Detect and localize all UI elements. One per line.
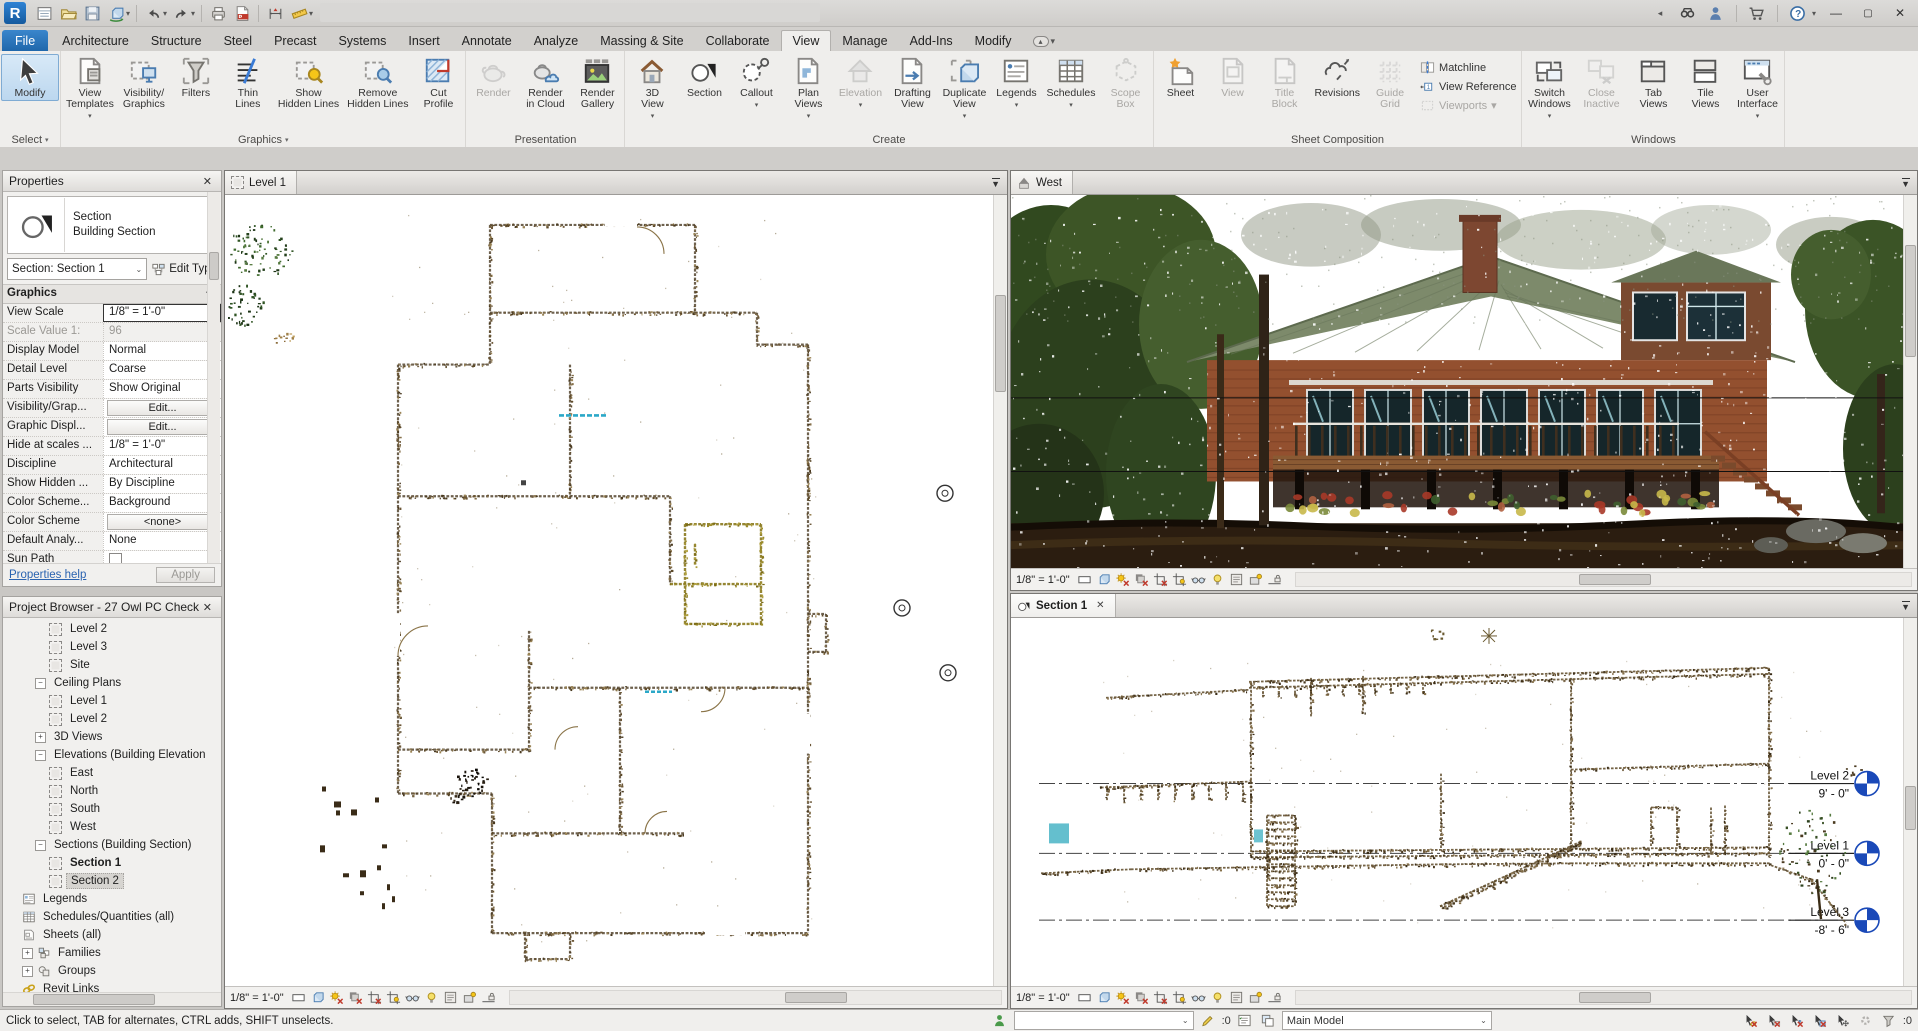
section1-view-tab[interactable]: Section 1 ✕ — [1011, 594, 1116, 617]
thin-lines-icon — [233, 56, 263, 86]
browser-item-east[interactable]: East — [3, 764, 221, 782]
browser-item-ceiling-plans[interactable]: −Ceiling Plans — [3, 674, 221, 692]
help-dropdown-icon[interactable]: ▾ — [1812, 9, 1816, 18]
vis-graphics-icon — [129, 56, 159, 86]
save-icon[interactable] — [80, 2, 104, 24]
section1-vertical-scrollbar[interactable] — [1903, 618, 1917, 986]
panel-graphics: ViewTemplates▾Visibility/GraphicsFilters… — [61, 51, 466, 147]
browser-item-section-2[interactable]: Section 2 — [3, 872, 221, 890]
redo-dropdown-icon[interactable]: ▾ — [191, 9, 195, 18]
expand-icon[interactable]: + — [22, 966, 33, 977]
view-icon — [49, 803, 62, 816]
revisions-icon — [1322, 56, 1352, 86]
project-browser: Project Browser - 27 Owl PC Check ✕ Leve… — [2, 596, 222, 1007]
property-row: DisciplineArchitectural — [3, 456, 221, 475]
temporary-hide-isolate-icon[interactable] — [404, 989, 422, 1006]
property-row: Hide at scales ...1/8" = 1'-0" — [3, 437, 221, 456]
switch-windows-button[interactable]: SwitchWindows▾ — [1523, 54, 1575, 124]
reveal-constraints-icon[interactable] — [480, 989, 498, 1006]
browser-item-3d-views[interactable]: +3D Views — [3, 728, 221, 746]
svg-text:0' - 0": 0' - 0" — [1818, 856, 1849, 870]
property-value[interactable]: Background — [103, 494, 221, 512]
view-icon — [49, 641, 62, 654]
temporary-view-properties-icon[interactable] — [1228, 989, 1246, 1006]
tab-steel[interactable]: Steel — [213, 30, 264, 51]
property-row: Graphic Displ...Edit... — [3, 418, 221, 437]
close-inactive-button: CloseInactive — [1575, 54, 1627, 112]
detail-level-icon[interactable] — [1076, 989, 1094, 1006]
view-icon — [49, 695, 62, 708]
visual-style-icon[interactable] — [1095, 989, 1113, 1006]
property-row: View Scale1/8" = 1'-0" — [3, 304, 221, 323]
section-button[interactable]: Section — [678, 54, 730, 101]
property-label: Scale Value 1: — [3, 323, 103, 341]
title-bar: R ▾▾▾▾1A▾▾▾ ◂ ? ▾ — ▢ ✕ — [0, 0, 1918, 27]
property-value-input[interactable]: 1/8" = 1'-0" — [103, 304, 221, 322]
property-label: Sun Path — [3, 551, 103, 563]
expand-icon[interactable]: + — [35, 732, 46, 743]
west-window-menu-icon[interactable]: ▼ — [1901, 178, 1917, 188]
panel-select: ModifySelect▾ — [0, 51, 61, 147]
ribbon-tab-row: FileArchitectureStructureSteelPrecastSys… — [0, 27, 1918, 51]
render-in-cloud-button[interactable]: Renderin Cloud — [519, 54, 571, 112]
shadows-icon[interactable] — [1133, 571, 1151, 588]
reveal-hidden-elements-icon[interactable] — [1209, 571, 1227, 588]
properties-help-link[interactable]: Properties help — [9, 569, 86, 581]
property-label: Color Scheme... — [3, 494, 103, 512]
render-button: Render — [467, 54, 519, 101]
user-interface-button[interactable]: UserInterface▾ — [1731, 54, 1783, 124]
title-area — [320, 3, 820, 22]
browser-item-groups[interactable]: +Groups — [3, 962, 221, 980]
view-reference-button[interactable]: 1View Reference — [1416, 77, 1520, 96]
property-value[interactable]: 1/8" = 1'-0" — [103, 437, 221, 455]
render-gallery-button[interactable]: RenderGallery — [571, 54, 623, 112]
property-row: Color Scheme<none> — [3, 513, 221, 532]
undo-icon[interactable] — [141, 2, 165, 24]
sun-path-icon[interactable] — [1114, 989, 1132, 1006]
drafting-view-icon — [897, 56, 927, 86]
open-icon[interactable] — [56, 2, 80, 24]
tab-systems[interactable]: Systems — [327, 30, 397, 51]
export-pdf-icon[interactable] — [230, 2, 254, 24]
show-crop-region-icon[interactable] — [1171, 571, 1189, 588]
property-value[interactable]: Architectural — [103, 456, 221, 474]
sync-icon[interactable] — [104, 2, 128, 24]
viewports-button: Viewports▾ — [1416, 96, 1520, 115]
project-browser-hscrollbar[interactable] — [3, 992, 221, 1006]
level1-horizontal-scrollbar[interactable] — [509, 990, 1002, 1005]
view-button: View — [1207, 54, 1259, 101]
select-by-face-icon[interactable] — [1811, 1012, 1829, 1029]
west-horizontal-scrollbar[interactable] — [1295, 572, 1912, 587]
drafting-view-button[interactable]: DraftingView — [886, 54, 938, 112]
duplicate-view-button[interactable]: DuplicateView▾ — [938, 54, 990, 124]
legend-icon — [22, 892, 36, 906]
properties-title: Properties — [9, 174, 64, 188]
toolbar-separator — [201, 5, 202, 22]
svg-text:1: 1 — [1427, 84, 1431, 91]
property-row: Sun Path — [3, 551, 221, 563]
background-processes-icon[interactable] — [1857, 1012, 1875, 1029]
tab-analyze[interactable]: Analyze — [523, 30, 589, 51]
tab-file[interactable]: File — [2, 30, 48, 51]
search-icon[interactable] — [1676, 2, 1700, 24]
property-label: Show Hidden ... — [3, 475, 103, 493]
temporary-view-properties-icon[interactable] — [442, 989, 460, 1006]
tab-views-button[interactable]: TabViews — [1627, 54, 1679, 112]
west-vertical-scrollbar[interactable] — [1903, 195, 1917, 568]
view-reference-icon: 1 — [1420, 79, 1435, 94]
remove-hidden-lines-button[interactable]: RemoveHidden Lines — [343, 54, 412, 112]
sheet-icon — [1166, 56, 1196, 86]
help-icon[interactable]: ? — [1786, 2, 1810, 24]
tab-collaborate[interactable]: Collaborate — [695, 30, 781, 51]
tab-manage[interactable]: Manage — [831, 30, 898, 51]
frame-background — [0, 147, 1918, 170]
show-crop-region-icon[interactable] — [385, 989, 403, 1006]
project-browser-title: Project Browser - 27 Owl PC Check — [9, 600, 199, 614]
property-row: Detail LevelCoarse — [3, 361, 221, 380]
sun-path-icon[interactable] — [328, 989, 346, 1006]
temporary-hide-isolate-icon[interactable] — [1190, 571, 1208, 588]
visual-style-icon[interactable] — [309, 989, 327, 1006]
section1-horizontal-scrollbar[interactable] — [1295, 990, 1912, 1005]
tab-view[interactable]: View — [781, 30, 832, 51]
filters-button[interactable]: Filters — [170, 54, 222, 101]
home-3d-icon — [637, 56, 667, 86]
tab-add-ins[interactable]: Add-Ins — [899, 30, 964, 51]
level1-scale-label[interactable]: 1/8" = 1'-0" — [230, 992, 284, 1004]
property-value[interactable]: Normal — [103, 342, 221, 360]
sun-path-checkbox[interactable] — [109, 553, 122, 563]
browser-item-revit-links[interactable]: Revit Links — [3, 980, 221, 992]
crop-view-icon[interactable] — [1152, 989, 1170, 1006]
tab-insert[interactable]: Insert — [397, 30, 450, 51]
measure-dropdown-icon[interactable]: ▾ — [309, 9, 313, 18]
view-icon — [49, 857, 62, 870]
browser-item-north[interactable]: North — [3, 782, 221, 800]
plan-views-icon — [793, 56, 823, 86]
properties-scrollbar[interactable] — [207, 192, 220, 563]
level1-view-tab[interactable]: Level 1 — [225, 171, 297, 194]
level1-view-control-bar: 1/8" = 1'-0" — [225, 986, 1007, 1008]
schedules-icon — [1056, 56, 1086, 86]
view-templates-button[interactable]: ViewTemplates▾ — [62, 54, 118, 124]
west-canvas[interactable] — [1011, 195, 1917, 568]
type-family-label: Section — [73, 210, 155, 225]
tab-massing-site[interactable]: Massing & Site — [589, 30, 694, 51]
toolbar-separator — [258, 5, 259, 22]
section1-view-header: Section 1 ✕ ▼ — [1011, 594, 1917, 618]
revisions-button[interactable]: Revisions — [1311, 54, 1365, 101]
matchline-icon — [1420, 60, 1435, 75]
view-icon — [49, 623, 62, 636]
status-hint: Click to select, TAB for alternates, CTR… — [6, 1015, 333, 1027]
tab-modify[interactable]: Modify — [964, 30, 1023, 51]
property-value[interactable]: Show Original — [103, 380, 221, 398]
panel-label: Presentation — [467, 132, 623, 147]
panel-label: Select▾ — [1, 132, 59, 147]
property-value[interactable]: By Discipline — [103, 475, 221, 493]
level1-view-window: Level 1 ▼ 1/8" = 1'-0" — [224, 170, 1008, 1009]
browser-item-level-1[interactable]: Level 1 — [3, 692, 221, 710]
west-scale-label[interactable]: 1/8" = 1'-0" — [1016, 574, 1070, 586]
expand-icon[interactable]: + — [22, 948, 33, 959]
level1-view-title: Level 1 — [249, 177, 286, 189]
worksharing-display-icon[interactable] — [1247, 989, 1265, 1006]
section1-scale-label[interactable]: 1/8" = 1'-0" — [1016, 992, 1070, 1004]
property-value[interactable]: Coarse — [103, 361, 221, 379]
worksharing-display-icon[interactable] — [461, 989, 479, 1006]
west-view-title: West — [1036, 177, 1062, 189]
schedules-button[interactable]: Schedules▾ — [1042, 54, 1099, 113]
section1-close-icon[interactable]: ✕ — [1096, 600, 1104, 611]
elevation-icon — [845, 56, 875, 86]
browser-item-west[interactable]: West — [3, 818, 221, 836]
redo-icon[interactable] — [169, 2, 193, 24]
level1-window-menu-icon[interactable]: ▼ — [991, 178, 1007, 188]
toolbar-collapse-icon[interactable]: ◂ — [1648, 2, 1672, 24]
type-filter-combobox[interactable]: Section: Section 1⌄ — [7, 258, 147, 280]
legends-button[interactable]: Legends▾ — [990, 54, 1042, 113]
design-option-combobox[interactable]: Main Model⌄ — [1282, 1011, 1492, 1030]
view-icon — [49, 875, 62, 888]
browser-item-sheets-all-[interactable]: Sheets (all) — [3, 926, 221, 944]
browser-item-sections-building-section-[interactable]: −Sections (Building Section) — [3, 836, 221, 854]
crop-view-icon[interactable] — [366, 989, 384, 1006]
panel-label: Graphics▾ — [62, 132, 464, 147]
view-icon — [49, 821, 62, 834]
active-workset-combobox[interactable]: ⌄ — [1014, 1011, 1194, 1030]
collapse-icon[interactable]: − — [35, 750, 46, 761]
level1-vertical-scrollbar[interactable] — [993, 195, 1007, 986]
level1-canvas[interactable] — [225, 195, 1007, 986]
cursor-icon — [15, 56, 45, 86]
apply-button[interactable]: Apply — [156, 567, 215, 583]
undo-dropdown-icon[interactable]: ▾ — [163, 9, 167, 18]
render-icon — [478, 56, 508, 86]
reveal-hidden-elements-icon[interactable] — [1209, 989, 1227, 1006]
property-label: Hide at scales ... — [3, 437, 103, 455]
sun-path-icon[interactable] — [1114, 571, 1132, 588]
browser-item-level-2[interactable]: Level 2 — [3, 620, 221, 638]
duplicate-view-icon — [949, 56, 979, 86]
shadows-icon[interactable] — [347, 989, 365, 1006]
restore-button[interactable]: ▢ — [1854, 3, 1882, 23]
view-icon — [49, 785, 62, 798]
worksets-icon[interactable] — [991, 1012, 1009, 1029]
thin-lines-button[interactable]: ThinLines — [222, 54, 274, 112]
ribbon-display-toggle[interactable]: ▴▾ — [1033, 36, 1056, 51]
properties-header[interactable]: Properties ✕ — [3, 171, 221, 192]
section1-window-menu-icon[interactable]: ▼ — [1901, 601, 1917, 611]
browser-item-site[interactable]: Site — [3, 656, 221, 674]
viewports-icon — [1420, 98, 1435, 113]
property-edit-button[interactable]: Edit... — [107, 400, 218, 416]
design-options-icon[interactable] — [1259, 1012, 1277, 1029]
properties-close-icon[interactable]: ✕ — [200, 175, 215, 188]
section1-view-window: Section 1 ✕ ▼ Level 29' - 0"Level 10' - … — [1010, 593, 1918, 1009]
tab-structure[interactable]: Structure — [140, 30, 213, 51]
browser-item-schedules-quantities-all-[interactable]: Schedules/Quantities (all) — [3, 908, 221, 926]
property-value[interactable]: None — [103, 532, 221, 550]
close-inactive-icon — [1586, 56, 1616, 86]
property-label: Graphic Displ... — [3, 418, 103, 436]
property-row: Color Scheme...Background — [3, 494, 221, 513]
switch-windows-icon — [1534, 56, 1564, 86]
view-templates-icon — [75, 56, 105, 86]
property-label: Discipline — [3, 456, 103, 474]
ribbon: ModifySelect▾ViewTemplates▾Visibility/Gr… — [0, 51, 1918, 148]
visibility-graphics-button[interactable]: Visibility/Graphics — [118, 54, 170, 112]
detail-level-icon[interactable] — [290, 989, 308, 1006]
property-row: Parts VisibilityShow Original — [3, 380, 221, 399]
temporary-view-properties-icon[interactable] — [1228, 571, 1246, 588]
select-underlay-icon[interactable] — [1765, 1012, 1783, 1029]
filter-count: :0 — [1903, 1015, 1912, 1027]
render-cloud-icon — [530, 56, 560, 86]
show-crop-region-icon[interactable] — [1171, 989, 1189, 1006]
minimize-button[interactable]: — — [1822, 3, 1850, 23]
property-edit-button[interactable]: <none> — [107, 514, 218, 530]
graphics-group-header[interactable]: Graphics▴▴ — [3, 285, 221, 304]
property-edit-button[interactable]: Edit... — [107, 419, 218, 435]
guide-grid-button: GuideGrid — [1364, 54, 1416, 112]
section-type-icon — [8, 198, 65, 252]
callout-button[interactable]: Callout▾ — [730, 54, 782, 113]
store-cart-icon[interactable] — [1745, 2, 1769, 24]
browser-item-level-2[interactable]: Level 2 — [3, 710, 221, 728]
panel-sheet-composition: SheetViewTitleBlockRevisionsGuideGridMat… — [1154, 51, 1523, 147]
select-pinned-icon[interactable] — [1788, 1012, 1806, 1029]
property-value[interactable]: 96 — [103, 323, 221, 341]
property-label: Detail Level — [3, 361, 103, 379]
elevation-view-icon — [1017, 176, 1031, 190]
property-row: Show Hidden ...By Discipline — [3, 475, 221, 494]
collapse-icon[interactable]: − — [35, 678, 46, 689]
modify-button[interactable]: Modify — [1, 54, 59, 101]
cut-profile-icon — [423, 56, 453, 86]
revit-logo[interactable]: R — [4, 2, 26, 24]
sheet-s-icon — [22, 928, 36, 942]
west-view-window: West ▼ 1/8" = 1'-0" — [1010, 170, 1918, 591]
reveal-hidden-elements-icon[interactable] — [423, 989, 441, 1006]
link-icon — [22, 982, 36, 992]
browser-item-section-1[interactable]: Section 1 — [3, 854, 221, 872]
tile-views-button[interactable]: TileViews — [1679, 54, 1731, 112]
close-button[interactable]: ✕ — [1886, 3, 1914, 23]
shadows-icon[interactable] — [1133, 989, 1151, 1006]
select-links-icon[interactable] — [1742, 1012, 1760, 1029]
browser-item-elevations-building-elevation[interactable]: −Elevations (Building Elevation — [3, 746, 221, 764]
browser-item-legends[interactable]: Legends — [3, 890, 221, 908]
matchline-button[interactable]: Matchline — [1416, 58, 1520, 77]
browser-item-families[interactable]: +Families — [3, 944, 221, 962]
reveal-constraints-icon[interactable] — [1266, 571, 1284, 588]
temporary-hide-isolate-icon[interactable] — [1190, 989, 1208, 1006]
elevation-button: Elevation▾ — [834, 54, 886, 113]
west-view-control-bar: 1/8" = 1'-0" — [1011, 568, 1917, 590]
file-tabs-icon[interactable] — [32, 2, 56, 24]
tab-annotate[interactable]: Annotate — [451, 30, 523, 51]
user-interface-icon — [1742, 56, 1772, 86]
property-label: Parts Visibility — [3, 380, 103, 398]
west-view-tab[interactable]: West — [1011, 171, 1073, 194]
plan-view-icon — [231, 176, 244, 189]
title-block-icon — [1270, 56, 1300, 86]
type-selector[interactable]: Section Building Section — [7, 196, 217, 254]
sync-dropdown-icon[interactable]: ▾ — [126, 9, 130, 18]
tab-architecture[interactable]: Architecture — [51, 30, 140, 51]
reveal-constraints-icon[interactable] — [1266, 989, 1284, 1006]
property-row: Visibility/Grap...Edit... — [3, 399, 221, 418]
drag-on-selection-icon[interactable] — [1834, 1012, 1852, 1029]
section-flag-icon — [689, 56, 719, 86]
svg-text:?: ? — [1796, 8, 1802, 19]
group-icon — [37, 964, 51, 978]
sheet-button[interactable]: Sheet — [1155, 54, 1207, 101]
property-label: View Scale — [3, 304, 103, 322]
browser-item-level-3[interactable]: Level 3 — [3, 638, 221, 656]
scope-box-icon — [1111, 56, 1141, 86]
view-icon — [49, 767, 62, 780]
plan-views-button[interactable]: PlanViews▾ — [782, 54, 834, 124]
editing-requests-count: :0 — [1222, 1015, 1231, 1027]
property-label: Color Scheme — [3, 513, 103, 531]
aligned-dimension-icon[interactable] — [263, 2, 287, 24]
project-browser-close-icon[interactable]: ✕ — [200, 601, 215, 614]
view-icon — [49, 659, 62, 672]
west-view-header: West ▼ — [1011, 171, 1917, 195]
svg-text:Level 2: Level 2 — [1810, 769, 1849, 783]
panel-label: Sheet Composition — [1155, 132, 1521, 147]
worksharing-display-icon[interactable] — [1247, 571, 1265, 588]
cut-profile-button[interactable]: CutProfile — [412, 54, 464, 112]
svg-text:9' - 0": 9' - 0" — [1818, 787, 1849, 801]
collapse-icon[interactable]: − — [35, 840, 46, 851]
measure-icon[interactable] — [287, 2, 311, 24]
sign-in-icon[interactable] — [1704, 2, 1728, 24]
remove-hidden-icon — [363, 56, 393, 86]
crop-view-icon[interactable] — [1152, 571, 1170, 588]
tab-precast[interactable]: Precast — [263, 30, 327, 51]
show-hidden-lines-button[interactable]: ShowHidden Lines — [274, 54, 343, 112]
section1-view-title: Section 1 — [1036, 600, 1087, 612]
tab-views-icon — [1638, 56, 1668, 86]
project-browser-tree: Level 2Level 3Site−Ceiling PlansLevel 1L… — [3, 618, 221, 992]
editing-requests-icon[interactable] — [1199, 1012, 1217, 1029]
section1-view-control-bar: 1/8" = 1'-0" — [1011, 986, 1917, 1008]
panel-label: Windows — [1523, 132, 1783, 147]
svg-text:Level 3: Level 3 — [1810, 905, 1849, 919]
project-browser-header[interactable]: Project Browser - 27 Owl PC Check ✕ — [3, 597, 221, 618]
browser-item-south[interactable]: South — [3, 800, 221, 818]
detail-level-icon[interactable] — [1076, 571, 1094, 588]
property-label: Display Model — [3, 342, 103, 360]
visual-style-icon[interactable] — [1095, 571, 1113, 588]
toolbar-separator — [136, 5, 137, 22]
property-row: Default Analy...None — [3, 532, 221, 551]
property-row: Display ModelNormal — [3, 342, 221, 361]
print-icon[interactable] — [206, 2, 230, 24]
view-icon — [49, 713, 62, 726]
callout-icon — [741, 56, 771, 86]
worksets-display-icon[interactable] — [1236, 1012, 1254, 1029]
3d-view-button[interactable]: 3DView▾ — [626, 54, 678, 124]
filter-icon[interactable] — [1880, 1012, 1898, 1029]
section1-canvas[interactable]: Level 29' - 0"Level 10' - 0"Level 3-8' -… — [1011, 618, 1917, 986]
